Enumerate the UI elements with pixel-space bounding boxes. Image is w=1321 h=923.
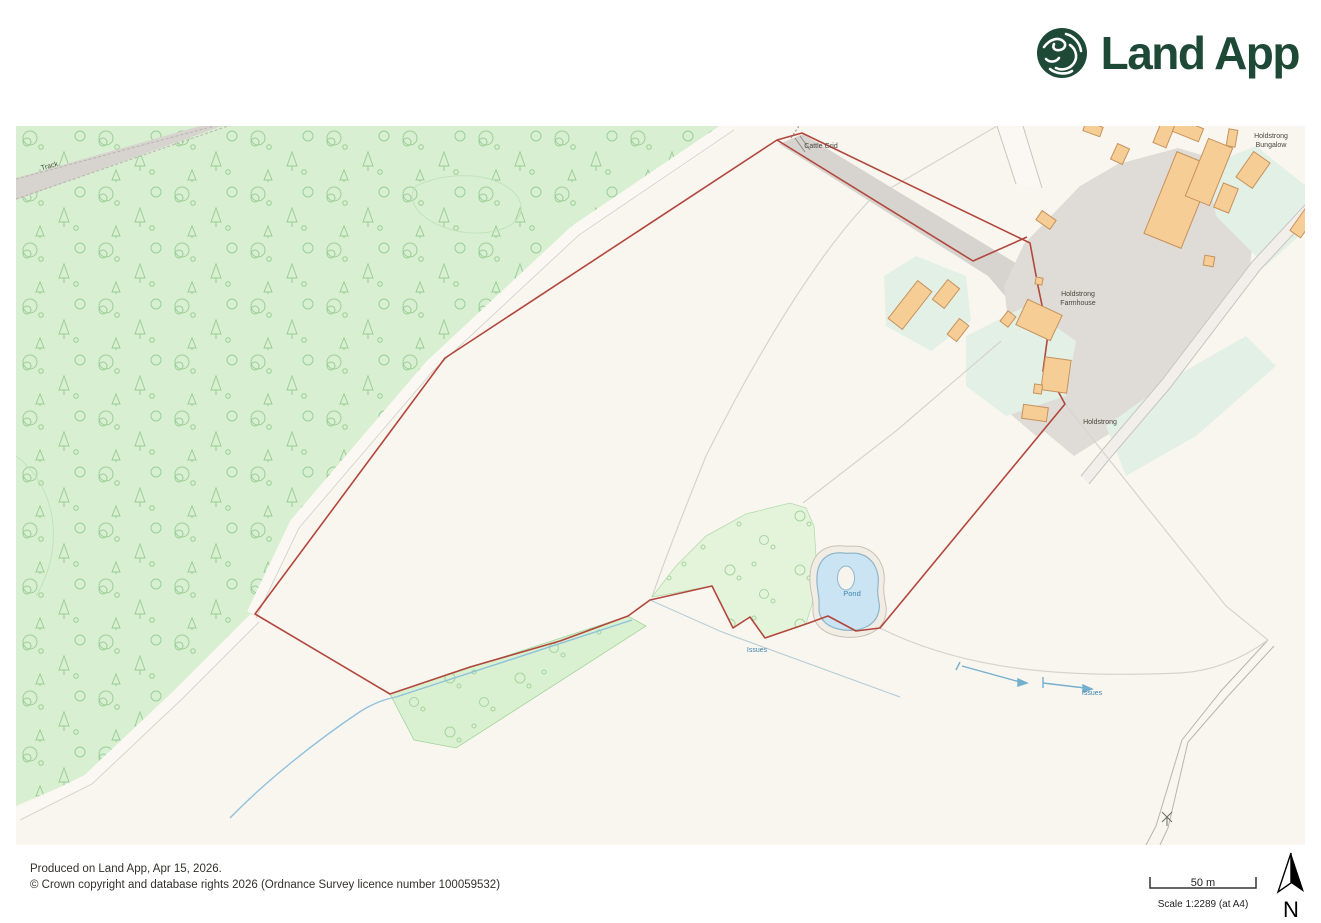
land-app-logo-icon — [1036, 27, 1088, 79]
attribution-produced: Produced on Land App, Apr 15, 2026. — [30, 861, 500, 877]
attribution-copyright: © Crown copyright and database rights 20… — [30, 877, 500, 893]
label-cattle-grid: Cattle Grid — [804, 143, 838, 150]
building — [1203, 255, 1215, 267]
north-arrow: N — [1268, 850, 1314, 923]
scale-distance: 50 m — [1148, 877, 1258, 889]
attribution: Produced on Land App, Apr 15, 2026. © Cr… — [30, 861, 500, 893]
label-pond: Pond — [843, 589, 861, 598]
map-svg: Track Cattle Grid Holdstrong Farmhouse H… — [16, 126, 1305, 845]
land-app-logo: Land App — [1036, 26, 1299, 80]
north-arrow-icon — [1271, 850, 1311, 896]
building — [1033, 384, 1042, 394]
scale-bar: 50 m Scale 1:2289 (at A4) — [1148, 864, 1258, 910]
map-canvas[interactable]: Track Cattle Grid Holdstrong Farmhouse H… — [16, 126, 1305, 845]
land-app-logo-text: Land App — [1101, 26, 1299, 80]
north-label: N — [1268, 897, 1314, 923]
building — [1041, 357, 1071, 393]
building — [1022, 404, 1049, 421]
label-farmhouse-2: Farmhouse — [1060, 300, 1096, 307]
label-issues-2: Issues — [1082, 690, 1103, 697]
label-holdstrong: Holdstrong — [1083, 419, 1117, 426]
scale-ratio: Scale 1:2289 (at A4) — [1148, 899, 1258, 910]
label-issues-1: Issues — [747, 647, 768, 654]
building — [1035, 277, 1043, 285]
label-farmhouse-1: Holdstrong — [1061, 291, 1095, 298]
label-bungalow-2: Bungalow — [1256, 142, 1288, 149]
label-bungalow-1: Holdstrong — [1254, 133, 1288, 140]
